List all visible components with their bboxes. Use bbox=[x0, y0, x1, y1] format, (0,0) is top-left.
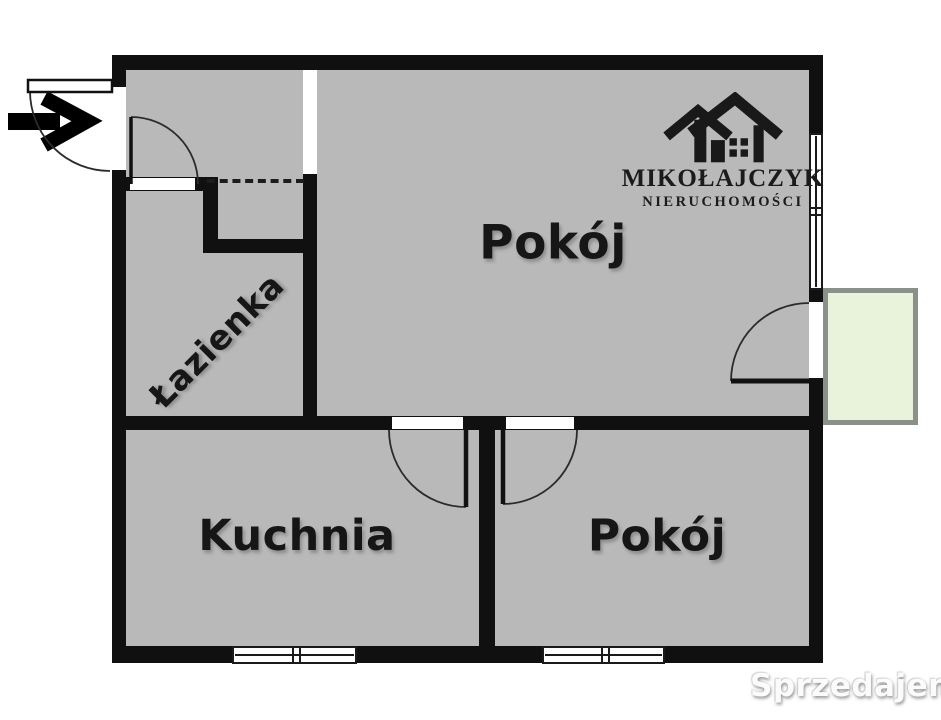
label-kitchen: Kuchnia bbox=[198, 511, 395, 561]
label-room-top: Pokój bbox=[479, 216, 627, 271]
bathroom-door bbox=[131, 117, 198, 184]
watermark: Sprzedajemy .pl bbox=[750, 668, 941, 704]
house-logo-icon bbox=[662, 92, 784, 166]
entrance-arrow-icon bbox=[8, 98, 87, 145]
floorplan-canvas: Pokój Łazienka Kuchnia Pokój MIKOŁAJCZYK… bbox=[0, 0, 941, 720]
agency-name: MIKOŁAJCZYK bbox=[613, 166, 833, 192]
label-room-bottom: Pokój bbox=[588, 511, 726, 562]
agency-logo: MIKOŁAJCZYK NIERUCHOMOŚCI bbox=[613, 92, 833, 211]
watermark-site-name: Sprzedajemy bbox=[750, 668, 941, 704]
kitchen-door bbox=[389, 430, 466, 507]
balcony-door bbox=[731, 303, 809, 381]
room-bottom-door bbox=[503, 430, 577, 504]
agency-tagline: NIERUCHOMOŚCI bbox=[613, 194, 833, 211]
